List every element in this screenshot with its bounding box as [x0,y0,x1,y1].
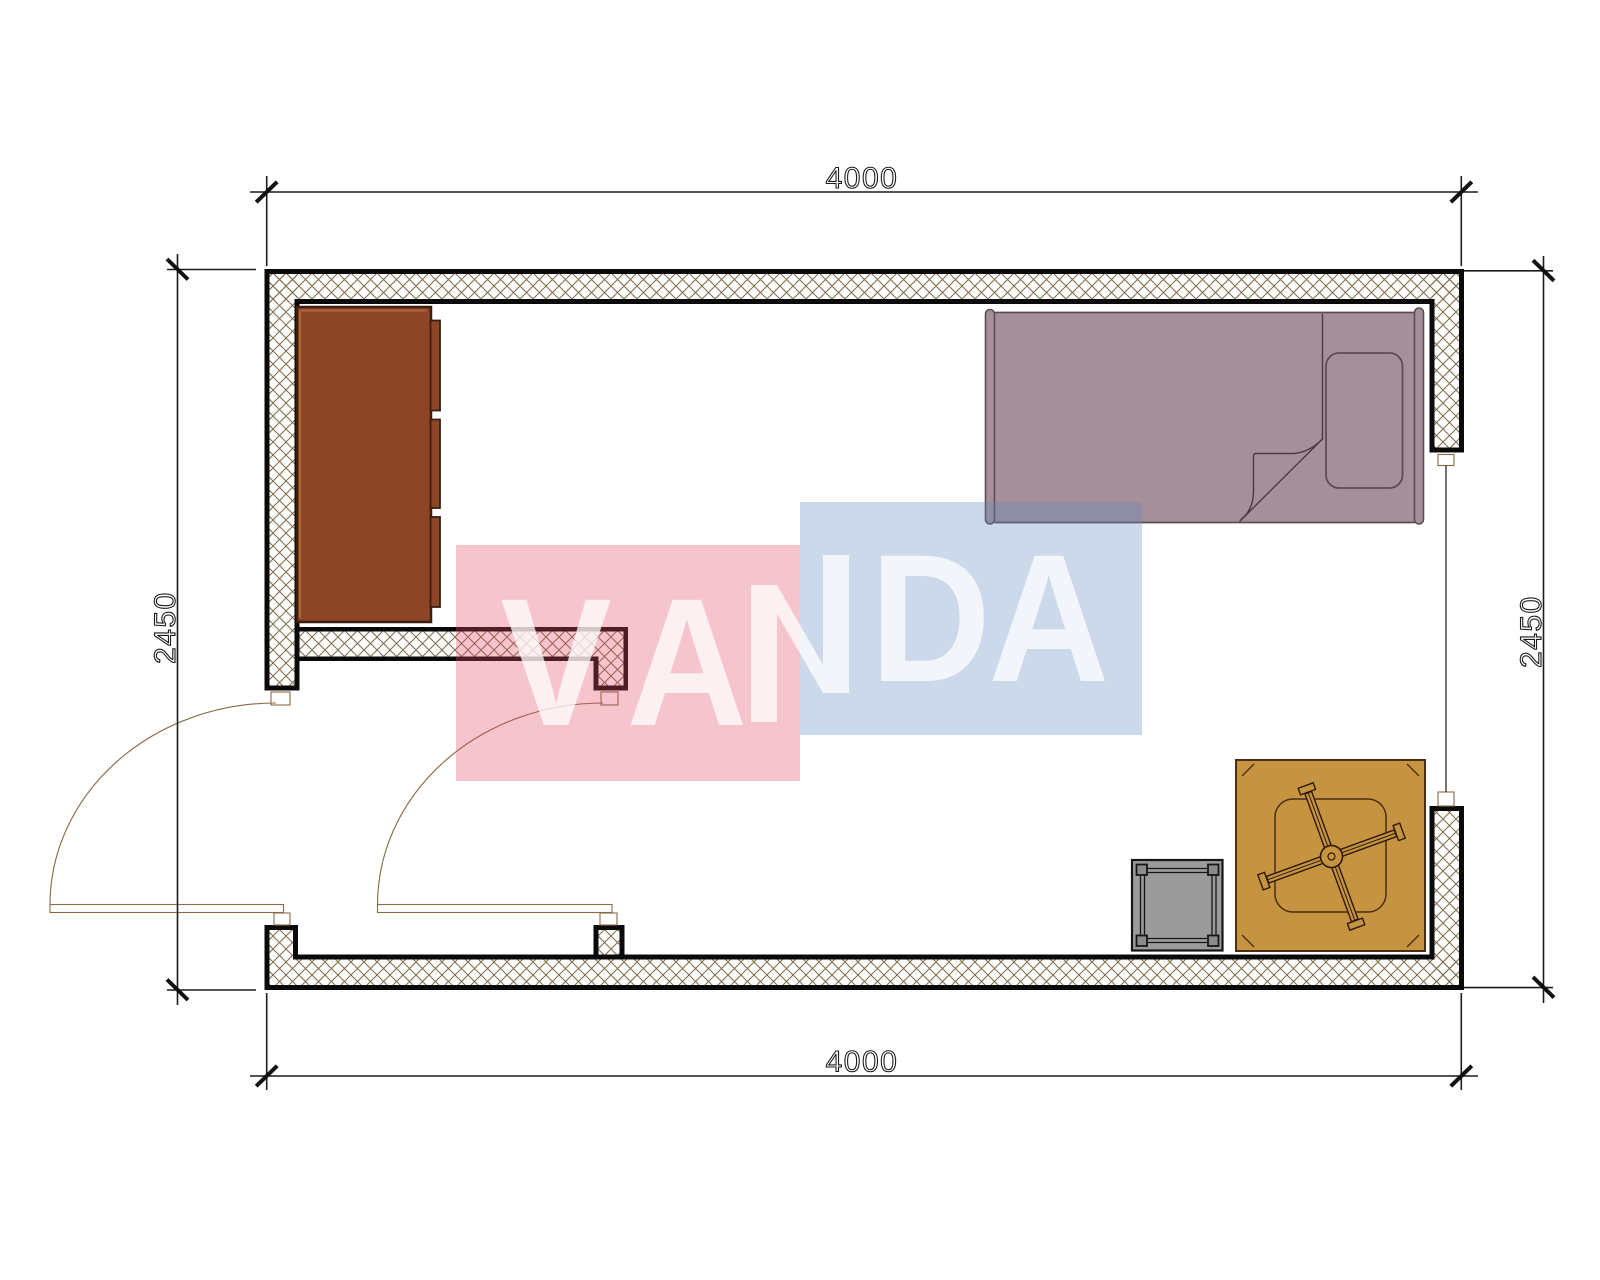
svg-text:4000: 4000 [826,162,899,195]
svg-text:DA: DA [870,518,1109,721]
svg-text:2450: 2450 [1515,595,1548,668]
svg-text:4000: 4000 [826,1046,899,1079]
svg-text:2450: 2450 [149,591,182,664]
